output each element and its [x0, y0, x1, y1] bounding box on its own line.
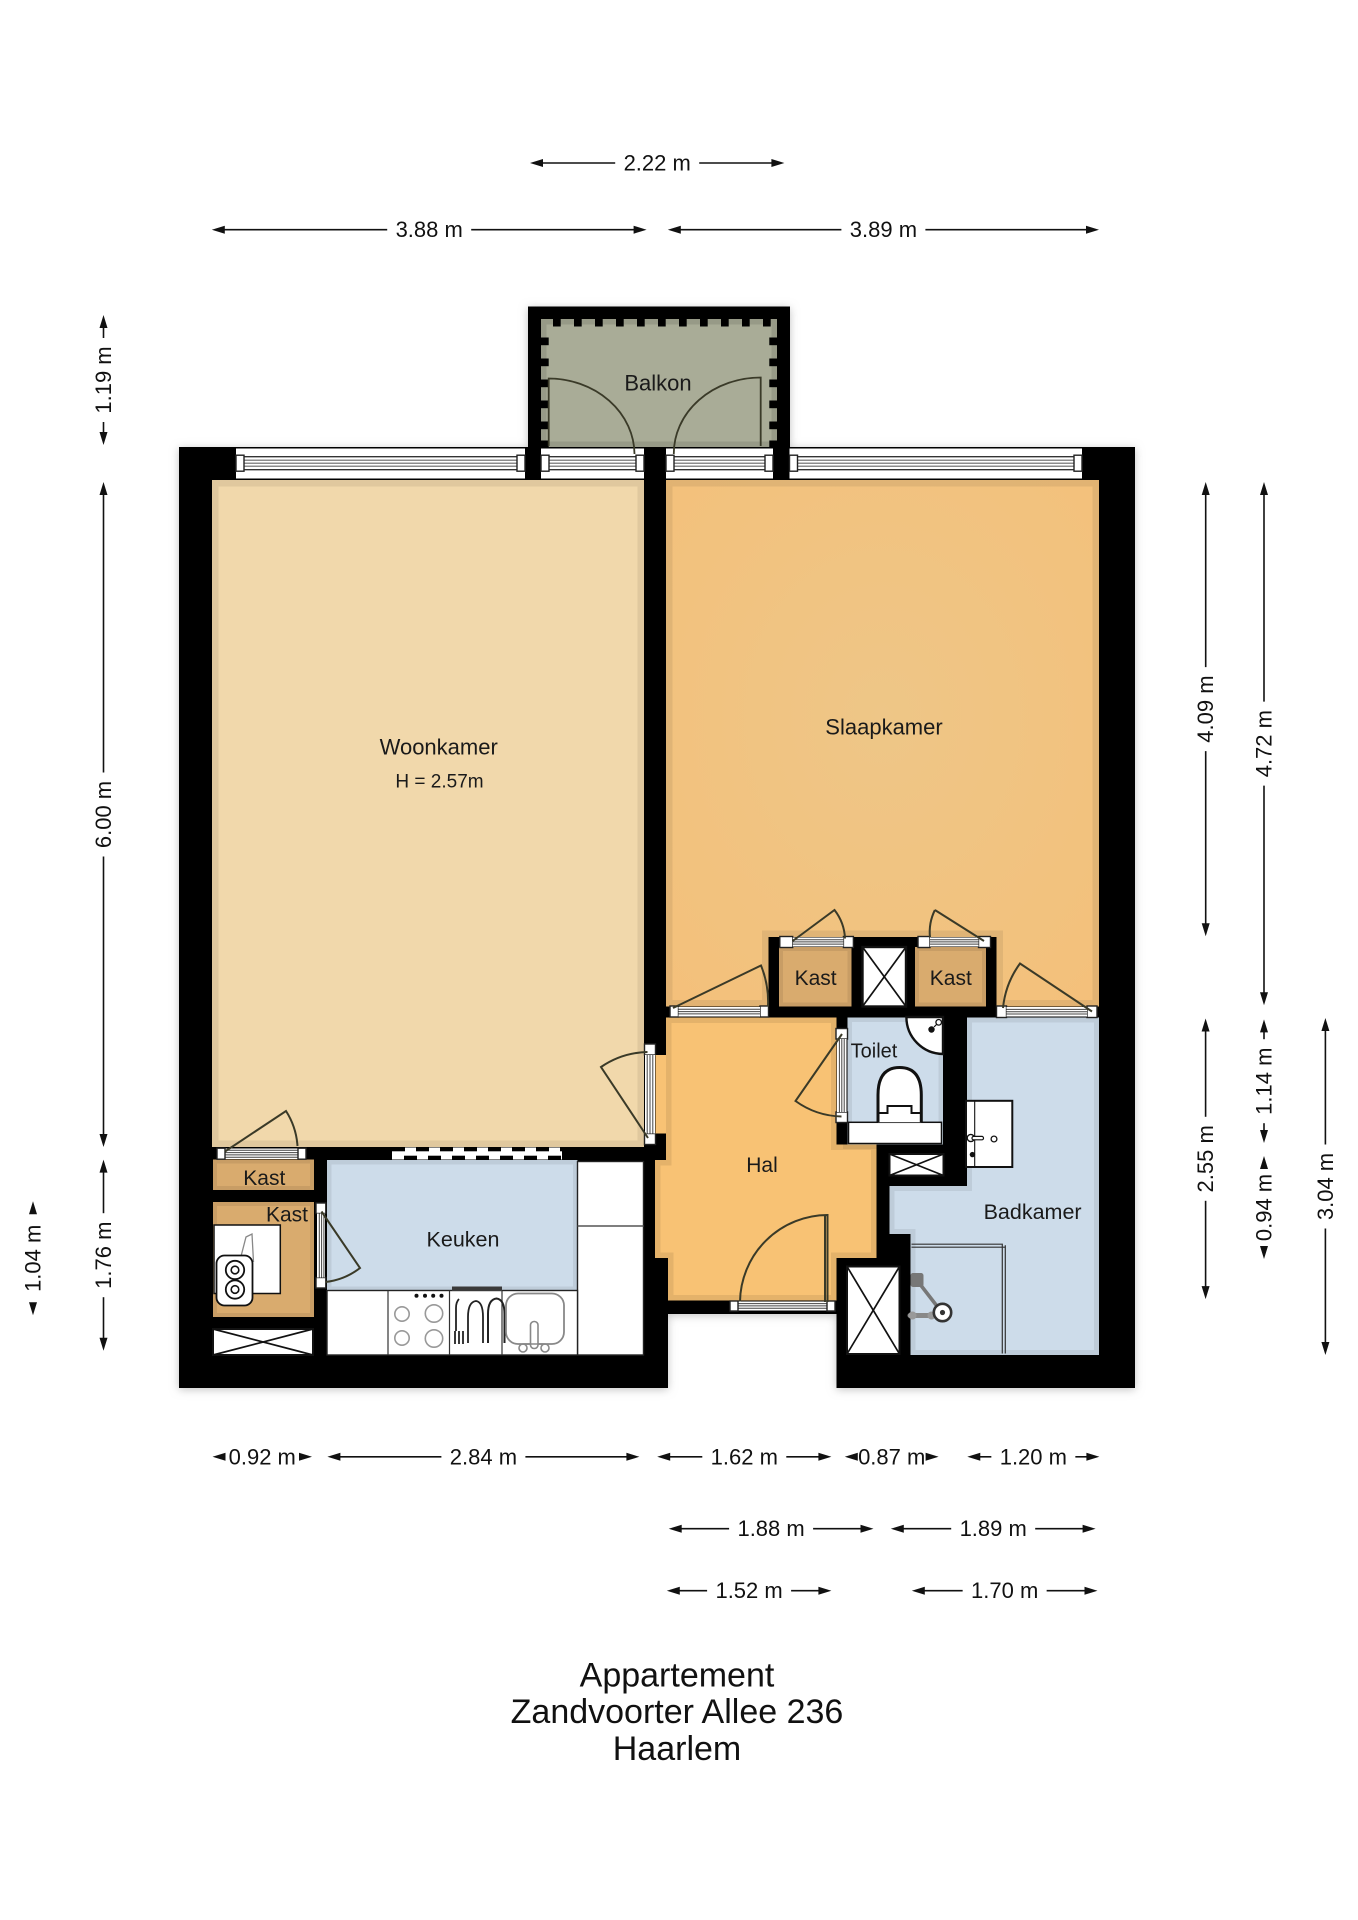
- svg-text:6.00 m: 6.00 m: [91, 781, 116, 848]
- svg-text:1.14 m: 1.14 m: [1252, 1048, 1277, 1115]
- svg-text:0.87 m: 0.87 m: [858, 1444, 925, 1469]
- svg-text:H = 2.57m: H = 2.57m: [395, 772, 483, 793]
- svg-text:1.62 m: 1.62 m: [711, 1444, 778, 1469]
- svg-text:3.89 m: 3.89 m: [850, 217, 917, 242]
- svg-text:Haarlem: Haarlem: [613, 1730, 741, 1768]
- svg-text:2.22 m: 2.22 m: [624, 151, 691, 176]
- svg-text:Keuken: Keuken: [427, 1228, 500, 1252]
- svg-text:1.88 m: 1.88 m: [737, 1516, 804, 1541]
- svg-text:Badkamer: Badkamer: [984, 1200, 1082, 1224]
- svg-text:1.04 m: 1.04 m: [21, 1225, 46, 1292]
- svg-text:2.55 m: 2.55 m: [1193, 1125, 1218, 1192]
- svg-text:1.52 m: 1.52 m: [715, 1578, 782, 1603]
- svg-text:1.70 m: 1.70 m: [971, 1578, 1038, 1603]
- svg-text:Kast: Kast: [795, 967, 837, 990]
- svg-text:Kast: Kast: [930, 967, 972, 990]
- svg-text:1.76 m: 1.76 m: [91, 1222, 116, 1289]
- svg-text:4.09 m: 4.09 m: [1193, 675, 1218, 742]
- svg-text:Toilet: Toilet: [851, 1041, 898, 1063]
- svg-text:1.19 m: 1.19 m: [91, 346, 116, 413]
- svg-text:Hal: Hal: [746, 1154, 778, 1177]
- svg-text:Appartement: Appartement: [580, 1657, 775, 1695]
- svg-text:1.20 m: 1.20 m: [1000, 1444, 1067, 1469]
- svg-text:1.89 m: 1.89 m: [960, 1516, 1027, 1541]
- svg-text:0.94 m: 0.94 m: [1252, 1174, 1277, 1241]
- svg-text:Balkon: Balkon: [624, 371, 691, 396]
- svg-text:Woonkamer: Woonkamer: [380, 735, 498, 760]
- svg-text:0.92 m: 0.92 m: [229, 1444, 296, 1469]
- svg-text:3.04 m: 3.04 m: [1313, 1153, 1338, 1220]
- svg-text:Slaapkamer: Slaapkamer: [825, 715, 942, 740]
- svg-text:3.88 m: 3.88 m: [396, 217, 463, 242]
- svg-text:Zandvoorter Allee 236: Zandvoorter Allee 236: [511, 1693, 844, 1731]
- svg-text:Kast: Kast: [266, 1204, 308, 1227]
- svg-text:4.72 m: 4.72 m: [1252, 710, 1277, 777]
- svg-text:Kast: Kast: [243, 1167, 285, 1190]
- svg-text:2.84 m: 2.84 m: [450, 1444, 517, 1469]
